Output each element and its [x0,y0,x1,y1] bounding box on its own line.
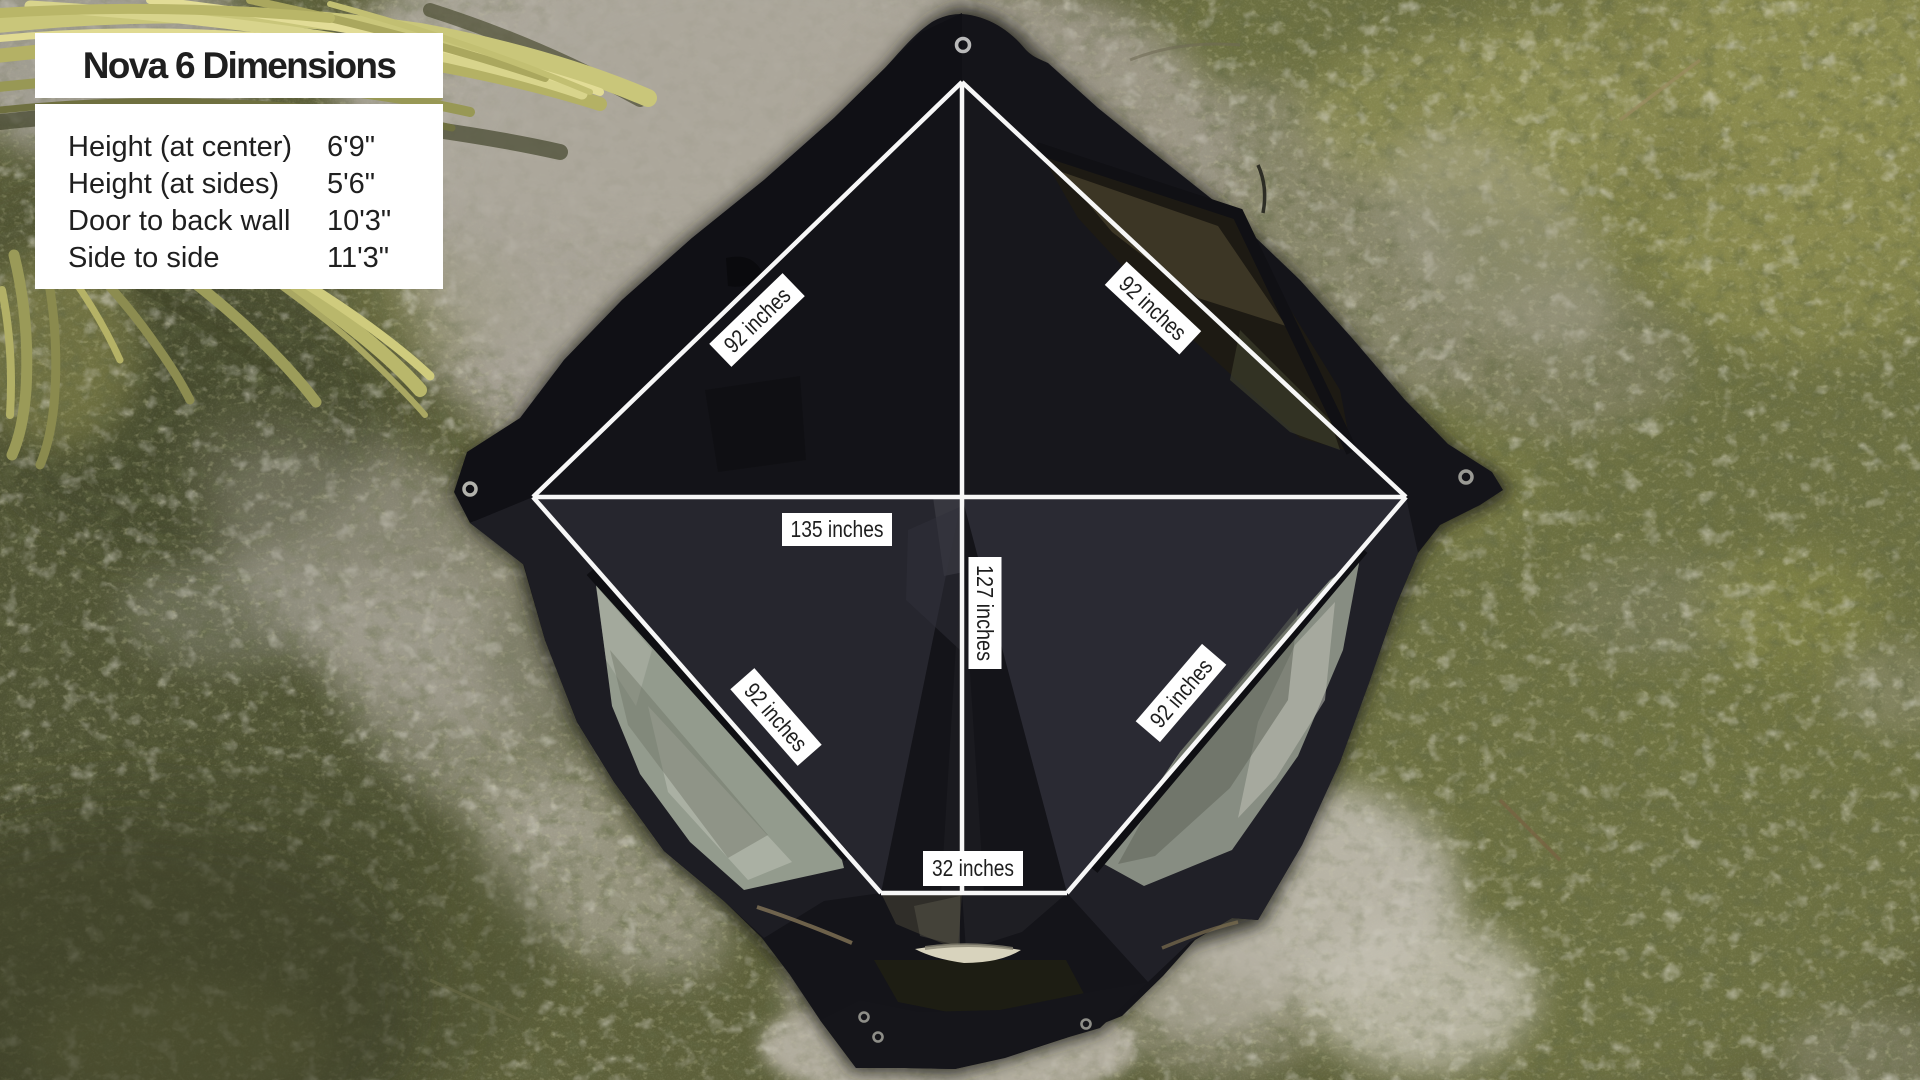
svg-text:32 inches: 32 inches [932,855,1014,881]
svg-text:135 inches: 135 inches [791,516,884,542]
svg-text:127 inches: 127 inches [972,565,998,661]
